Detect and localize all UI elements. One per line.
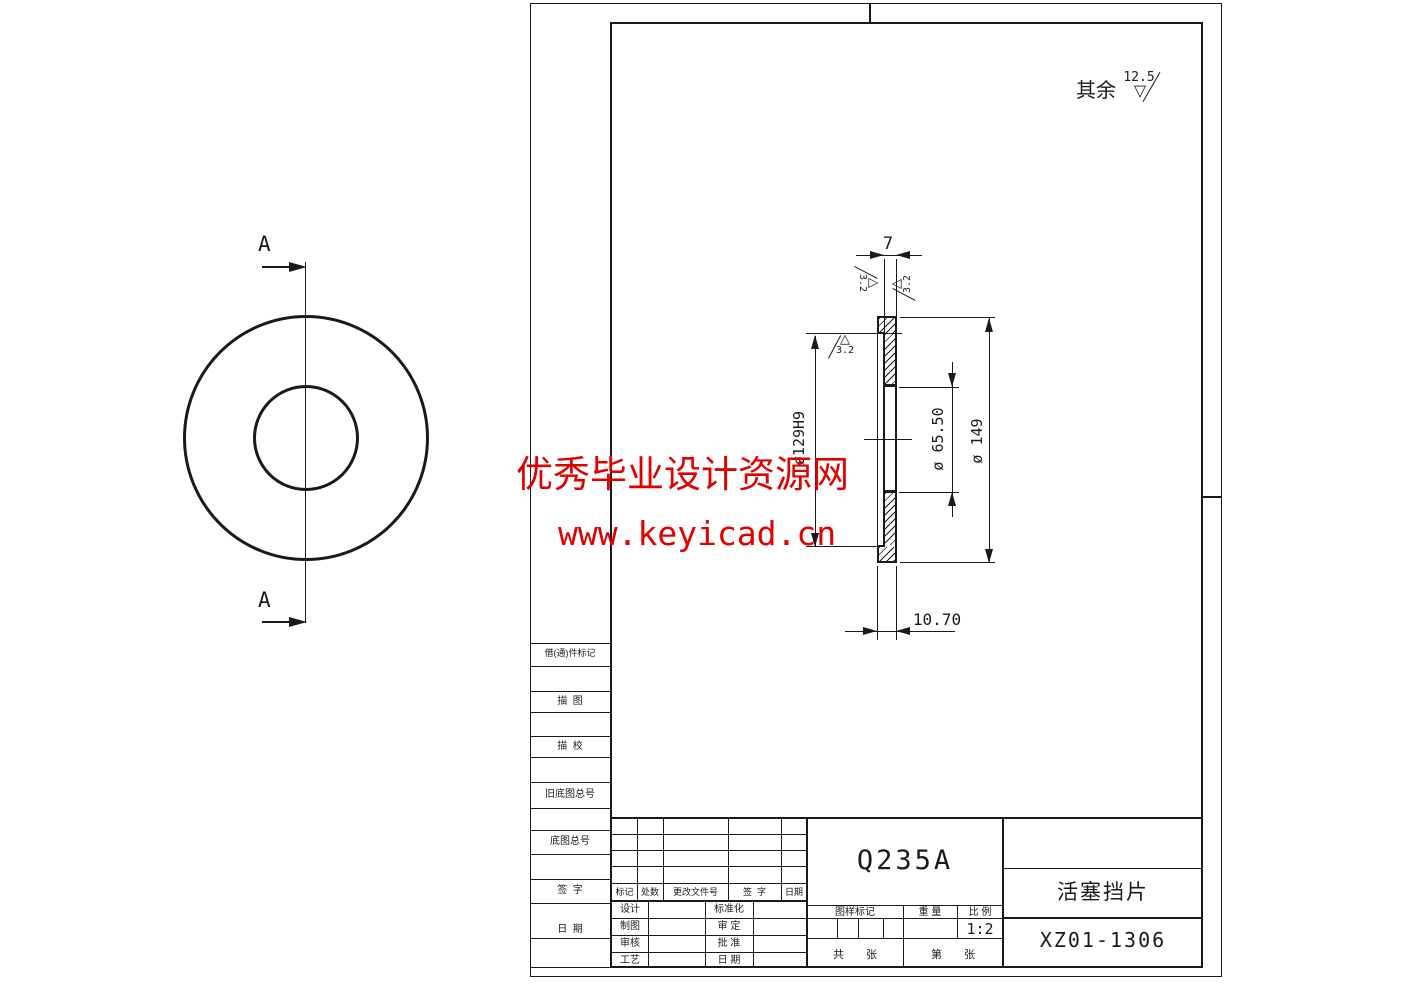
line (612, 935, 807, 936)
line (610, 817, 1203, 819)
line (883, 384, 897, 387)
side-label-signature: 签 字 (530, 885, 610, 897)
role-date: 日 期 (705, 955, 753, 967)
line (856, 255, 922, 256)
roughness-symbol-right-face: △ 3.2 (890, 271, 918, 297)
line (989, 317, 990, 563)
weight-label: 重 量 (903, 907, 957, 919)
rev-col-mark: 标记 (612, 887, 637, 897)
sheets-total-label: 共 张 (807, 949, 903, 962)
arrow (985, 549, 993, 563)
line (837, 918, 838, 938)
roughness-symbol-recess-face: △ 3.2 (832, 333, 858, 361)
roughness-symbol-left-face: △ 3.2 (852, 270, 880, 296)
section-label-top: A (258, 232, 271, 256)
triangle-icon: △ (840, 332, 850, 345)
hatch-region (885, 334, 895, 384)
line (1003, 917, 1203, 919)
material-value: Q235A (840, 845, 970, 876)
line (877, 561, 897, 563)
line (753, 901, 754, 968)
dim-text: 10.70 (902, 611, 972, 629)
hatch-region (879, 318, 895, 333)
dim-text: ø 65.50 (929, 391, 947, 487)
role-check: 审核 (612, 938, 648, 950)
part-name: 活塞挡片 (1003, 881, 1203, 905)
hatch-region (879, 547, 895, 561)
role-standardize: 标准化 (705, 904, 753, 916)
line (900, 317, 995, 318)
line (530, 712, 610, 713)
scale-label: 比 例 (957, 907, 1003, 919)
dim-text: ø 149 (968, 405, 986, 477)
line (530, 757, 610, 758)
line (530, 808, 610, 809)
line (884, 259, 885, 333)
line (877, 566, 878, 640)
cad-drawing-sheet: A A 其余 12.5 ▽ 7 (0, 0, 1403, 992)
section-arrow-line-bottom (262, 621, 292, 623)
line (530, 643, 610, 644)
side-label-trace: 描 图 (530, 696, 610, 708)
side-label-trace-check: 描 校 (530, 741, 610, 753)
arrow (811, 335, 819, 349)
rev-col-count: 处数 (637, 887, 663, 897)
role-process: 工艺 (612, 955, 648, 967)
triangle-icon: △ (889, 279, 902, 289)
line (648, 901, 649, 968)
scale-value: 1:2 (957, 921, 1003, 938)
line (807, 905, 1003, 906)
line (612, 834, 807, 835)
line (530, 691, 610, 692)
line (530, 903, 610, 904)
section-label-bottom: A (258, 588, 271, 612)
center-line (864, 439, 912, 440)
roughness-value: 3.2 (902, 275, 913, 293)
note-prefix: 其余 (1076, 80, 1116, 103)
centering-mark-top (869, 3, 871, 22)
line (612, 866, 807, 867)
role-design: 设计 (612, 904, 648, 916)
line (858, 918, 859, 938)
line (530, 666, 610, 667)
line (612, 952, 807, 953)
watermark-text: 优秀毕业设计资源网 (516, 444, 849, 498)
side-label-old-master-no: 旧底图总号 (530, 789, 610, 801)
side-label-borrowed: 借(通)件标记 (529, 648, 611, 658)
line (612, 883, 807, 884)
section-cut-line (305, 262, 306, 623)
hole-circle (253, 385, 359, 491)
line (883, 918, 884, 938)
arrow (863, 627, 877, 635)
section-arrow-bottom (289, 617, 307, 627)
line (1003, 868, 1203, 869)
arrow (985, 318, 993, 332)
dim-text: 7 (876, 235, 900, 255)
role-approve-review: 审 定 (705, 921, 753, 933)
side-label-date: 日 期 (530, 924, 610, 936)
side-label-master-no: 底图总号 (530, 836, 610, 848)
roughness-value: 3.2 (836, 345, 854, 356)
watermark-url: www.keyicad.cn (558, 514, 836, 553)
line (612, 900, 807, 902)
rev-col-signature: 签 字 (728, 887, 781, 897)
rev-col-date: 日期 (781, 887, 807, 897)
line (612, 850, 807, 851)
roughness-value: 3.2 (857, 274, 868, 292)
sheet-no-label: 第 张 (903, 949, 1003, 962)
triangle-icon: △ (868, 278, 881, 288)
line (530, 879, 610, 880)
line (530, 967, 610, 968)
section-arrow-top (289, 262, 307, 272)
line (530, 830, 610, 831)
line (530, 782, 610, 783)
line (877, 334, 878, 546)
line (530, 854, 610, 855)
mark-label: 图样标记 (807, 907, 903, 919)
hatch-region (885, 493, 895, 545)
section-arrow-line-top (262, 266, 292, 268)
line (899, 387, 959, 388)
line (900, 562, 995, 563)
role-draft: 制图 (612, 921, 648, 933)
rev-col-doc-no: 更改文件号 (663, 887, 728, 897)
centering-mark-right (1203, 496, 1222, 498)
line (530, 938, 610, 939)
arrow (948, 373, 956, 387)
arrow (948, 492, 956, 506)
line (530, 736, 610, 737)
role-ratify: 批 准 (705, 938, 753, 950)
drawing-number: XZ01-1306 (1003, 929, 1203, 952)
